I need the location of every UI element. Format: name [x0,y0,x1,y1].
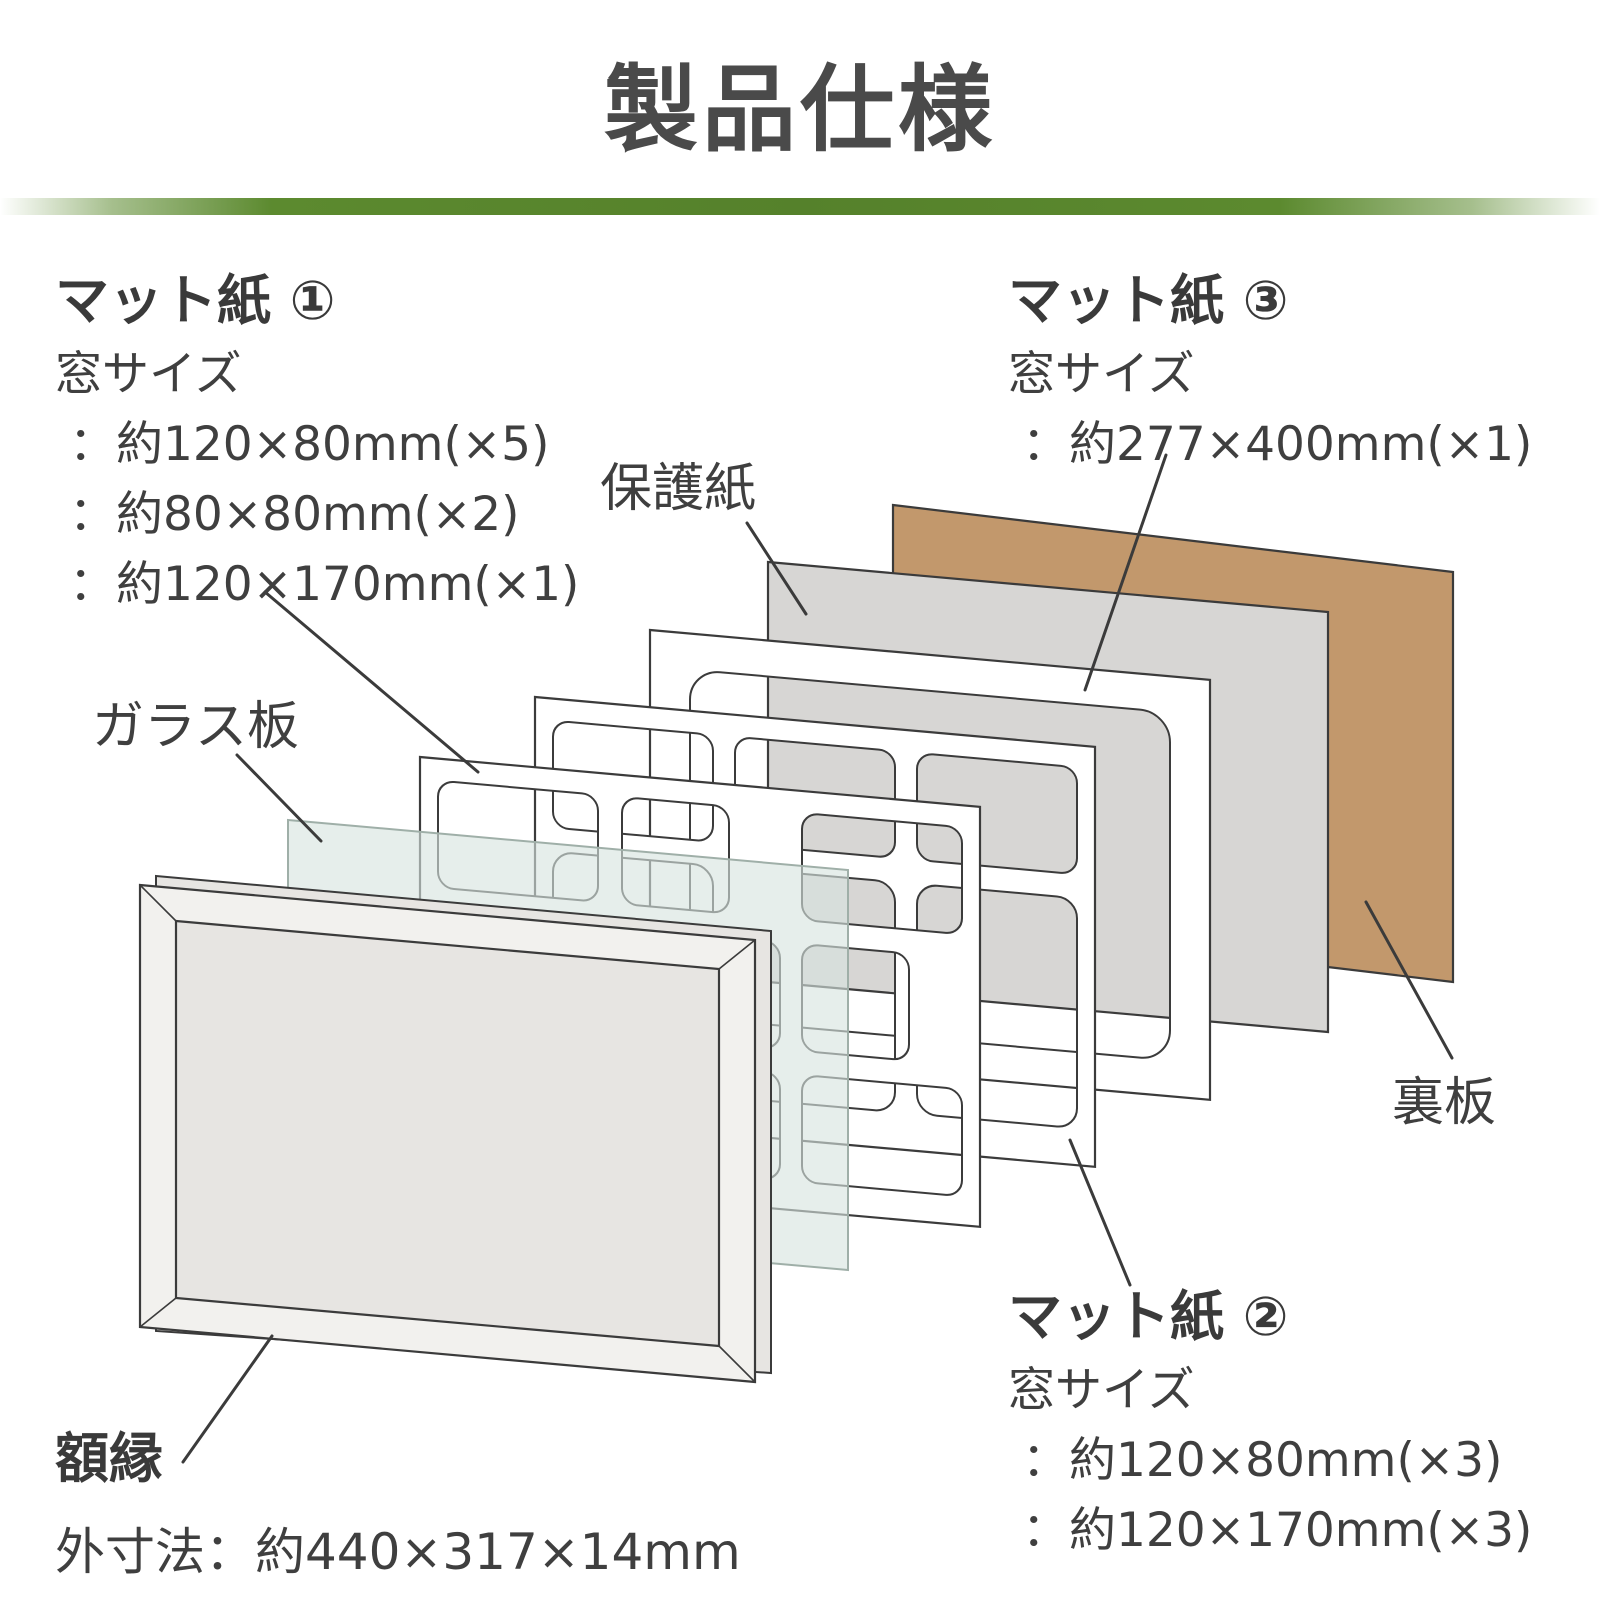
mat2-size-2: ：約120×170mm(×3) [1008,1496,1532,1566]
leader-glass-line [237,755,321,841]
mat1-size-1: ：約120×80mm(×5) [55,410,579,480]
leader-frame-line [183,1336,272,1462]
glass-label: ガラス板 [92,684,299,759]
mat1-subtitle: 窓サイズ [55,340,579,410]
protective-paper-label: 保護紙 [600,446,756,521]
mat3-title: マット紙 ③ [1008,262,1532,340]
spec-sheet: 製品仕様 [0,0,1600,1600]
mat2-spec-block: マット紙 ② 窓サイズ ：約120×80mm(×3) ：約120×170mm(×… [1008,1278,1532,1566]
mat3-size-1: ：約277×400mm(×1) [1008,410,1532,480]
mat2-subtitle: 窓サイズ [1008,1356,1532,1426]
leader-mat2-line [1070,1140,1130,1285]
mat2-title: マット紙 ② [1008,1278,1532,1356]
frame-outer-dimensions: 外寸法：約440×317×14mm [55,1512,741,1584]
mat1-size-2: ：約80×80mm(×2) [55,480,579,550]
frame-layer [140,876,771,1382]
mat1-title: マット紙 ① [55,262,579,340]
mat1-spec-block: マット紙 ① 窓サイズ ：約120×80mm(×5) ：約80×80mm(×2)… [55,262,579,620]
back-board-label: 裏板 [1392,1060,1496,1135]
mat3-spec-block: マット紙 ③ 窓サイズ ：約277×400mm(×1) [1008,262,1532,480]
mat1-size-3: ：約120×170mm(×1) [55,550,579,620]
mat2-size-1: ：約120×80mm(×3) [1008,1426,1532,1496]
frame-label: 額縁 [55,1414,163,1493]
mat3-subtitle: 窓サイズ [1008,340,1532,410]
